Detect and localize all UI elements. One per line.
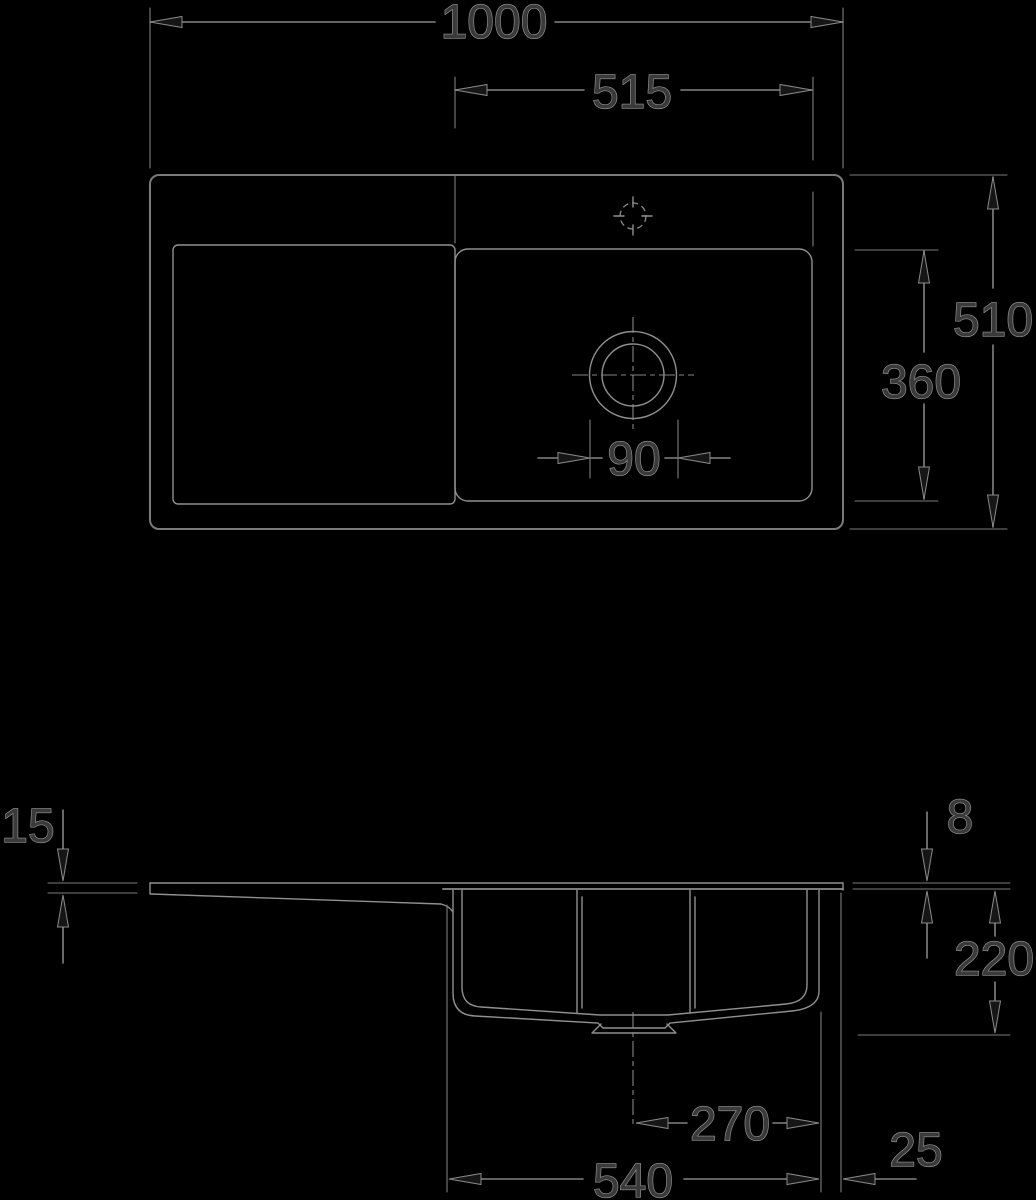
sink-outline [150,175,843,529]
arrowhead [922,891,933,923]
dim-rim-overhang-label: 25 [889,1124,942,1177]
dim-drain-diameter-label: 90 [607,433,660,486]
dim-rim-height-label: 8 [947,791,974,844]
arrowhead [988,495,999,527]
dim-bowl-width: 515 [455,66,813,246]
technical-drawing-canvas: 1000 515 510 360 [0,0,1036,1200]
side-view: 15 8 220 270 540 [1,791,1034,1200]
dim-left-edge-height: 15 [1,800,68,963]
dim-bowl-length-label: 540 [593,1155,673,1200]
arrowhead [919,467,930,499]
dim-overall-width-label: 1000 [441,0,548,49]
dim-bowl-length: 540 [449,1155,819,1200]
dim-left-edge-height-label: 15 [1,800,54,853]
dim-drain-offset-label: 270 [690,1098,770,1151]
arrowhead [58,849,69,881]
arrowhead [455,85,487,96]
dim-bowl-depth-section-label: 220 [954,933,1034,986]
sink-drawing: 1000 515 510 360 [0,0,1036,1200]
dim-bowl-depth-plan-label: 360 [881,356,961,409]
arrowhead [919,251,930,283]
arrowhead [990,1001,1001,1033]
drainboard-slope [151,894,453,912]
dim-bowl-depth-plan: 360 [855,250,961,501]
drain-symbol [572,317,694,433]
arrowhead [990,891,1001,923]
arrowhead [811,17,843,28]
dim-rim-overhang: 25 [843,1124,943,1185]
arrowhead [636,1118,668,1129]
dim-overall-depth-label: 510 [953,294,1033,347]
dim-bowl-depth-section: 220 [954,891,1034,1033]
dim-overall-width: 1000 [150,0,843,168]
dim-bowl-width-label: 515 [592,66,672,119]
arrowhead [787,1174,819,1185]
arrowhead [558,453,590,464]
dim-drain-offset: 270 [636,1098,819,1151]
arrowhead [449,1174,481,1185]
arrowhead [988,177,999,209]
arrowhead [843,1174,875,1185]
arrowhead [787,1118,819,1129]
arrowhead [922,849,933,881]
top-view: 1000 515 510 360 [150,0,1033,529]
faucet-hole-symbol [614,197,652,235]
drainboard-outline [173,245,455,504]
arrowhead [678,453,710,464]
ext-lines-left [48,883,137,893]
bowl-interior-edges [577,890,695,1013]
ext-lines-bottom [447,893,841,1192]
dim-drain-diameter: 90 [538,420,730,486]
bowl-inner-profile [462,890,807,1015]
arrowhead [58,895,69,927]
bowl-outer-profile [453,890,819,1028]
dim-overall-depth: 510 [850,175,1033,529]
arrowhead [780,85,812,96]
arrowhead [150,17,182,28]
